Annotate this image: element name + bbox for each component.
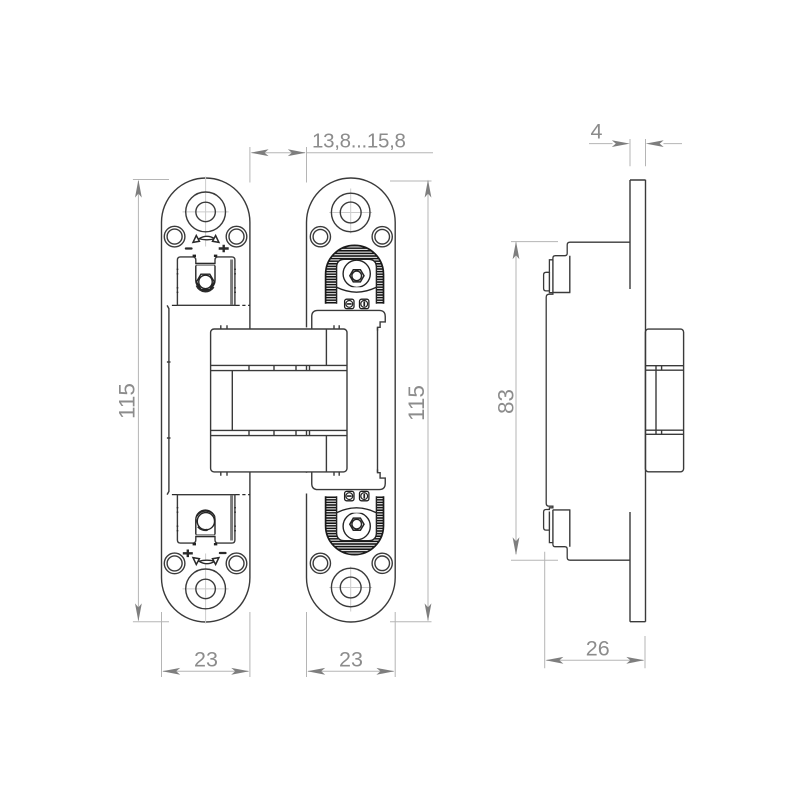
svg-text:115: 115 — [115, 383, 140, 419]
svg-text:115: 115 — [404, 385, 429, 421]
svg-text:23: 23 — [339, 648, 363, 672]
svg-text:4: 4 — [591, 120, 603, 144]
svg-text:23: 23 — [194, 648, 218, 672]
svg-text:26: 26 — [586, 637, 610, 661]
svg-text:13,8...15,8: 13,8...15,8 — [312, 130, 406, 153]
svg-text:83: 83 — [494, 389, 519, 414]
